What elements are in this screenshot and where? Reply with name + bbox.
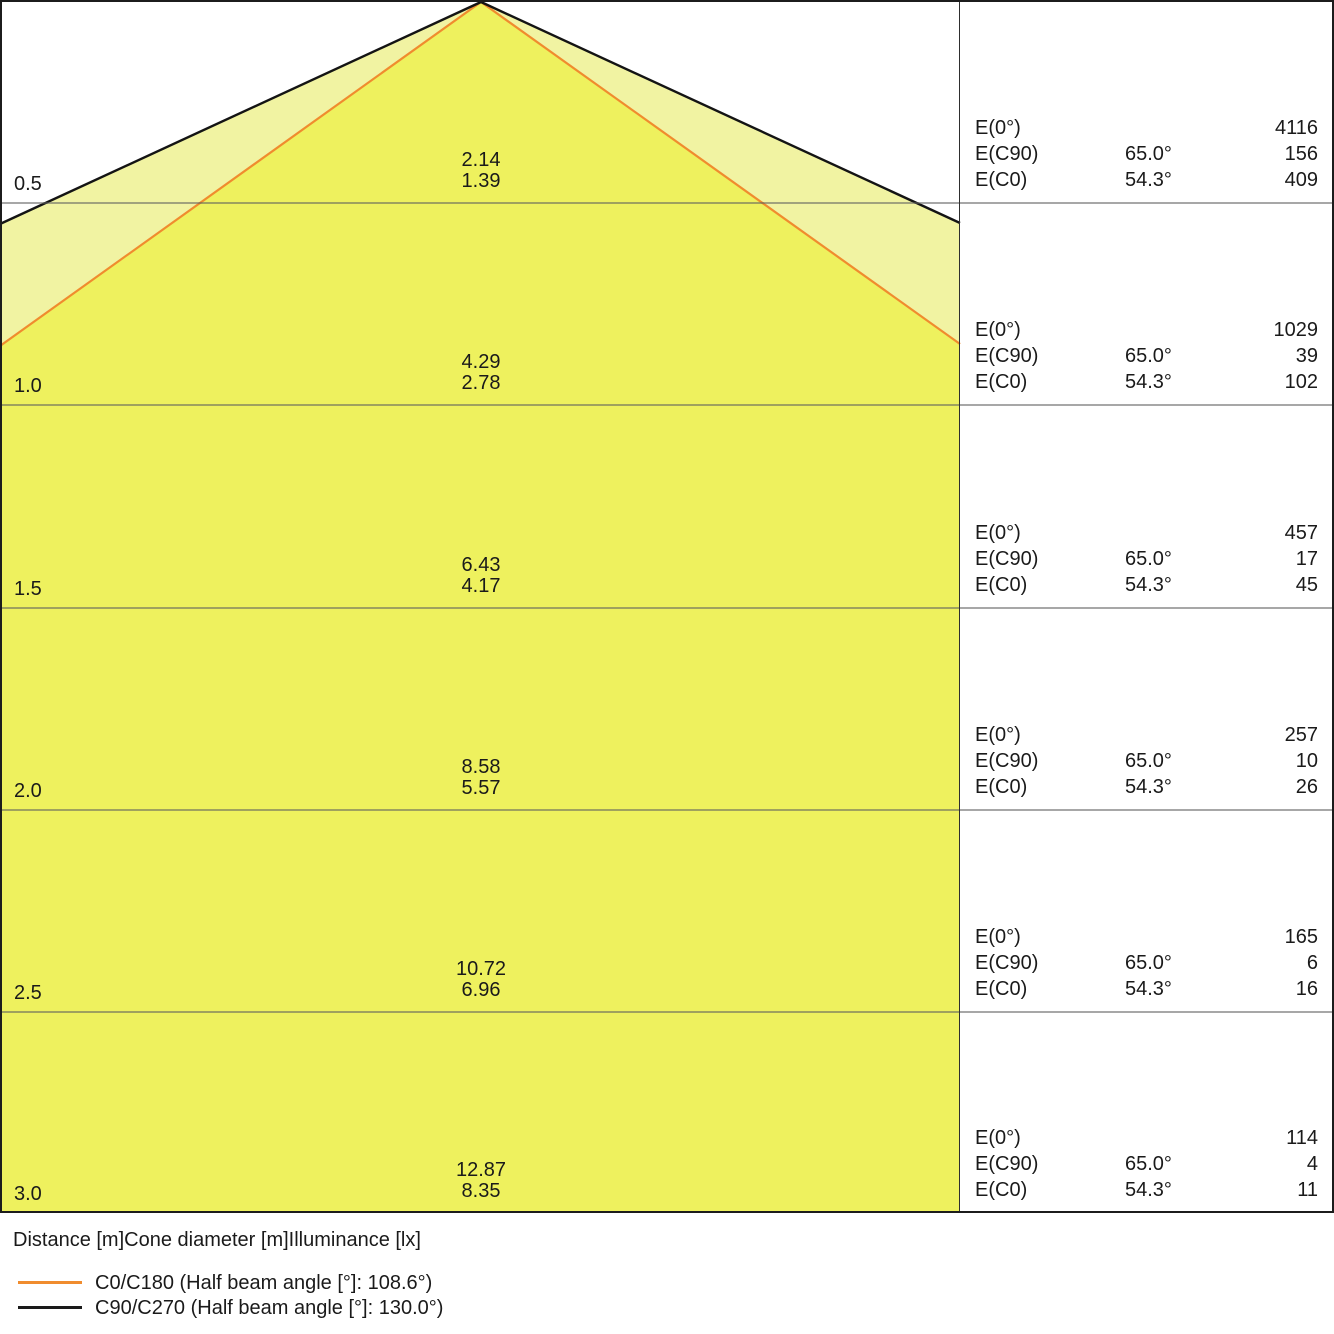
illuminance-table-row: E(0°)114E(C90)65.0°4E(C0)54.3°11 [960,1125,1334,1203]
row-divider-line [0,1011,1334,1013]
e0-label: E(0°) [975,924,1021,950]
ec90-label: E(C90) [975,546,1038,572]
ec0-label: E(C0) [975,774,1027,800]
ec0-label: E(C0) [975,572,1027,598]
table-line-ec0: E(C0)54.3°11 [960,1177,1334,1203]
e0-label: E(0°) [975,1125,1021,1151]
legend-c90-label: C90/C270 (Half beam angle [°]: 130.0°) [95,1297,443,1320]
table-line-ec0: E(C0)54.3°409 [960,167,1334,193]
cone-diameter-c0: 6.96 [0,980,962,1001]
table-line-e0: E(0°)457 [960,520,1334,546]
cone-diameter-c90: 8.58 [0,757,962,778]
table-line-ec90: E(C90)65.0°4 [960,1151,1334,1177]
table-line-ec0: E(C0)54.3°45 [960,572,1334,598]
e0-label: E(0°) [975,722,1021,748]
ec90-angle: 65.0° [1125,1151,1172,1177]
cone-diameter-labels: 2.141.39 [0,150,962,192]
table-line-e0: E(0°)165 [960,924,1334,950]
ec0-angle: 54.3° [1125,976,1172,1002]
table-line-ec0: E(C0)54.3°16 [960,976,1334,1002]
ec0-value: 409 [1285,167,1318,193]
ec0-value: 102 [1285,369,1318,395]
e0-value: 457 [1285,520,1318,546]
e0-label: E(0°) [975,317,1021,343]
cone-diagram: 0.52.141.39E(0°)4116E(C90)65.0°156E(C0)5… [0,0,1334,1213]
footer-columns-label: Distance [m]Cone diameter [m]Illuminance… [13,1228,421,1252]
ec0-label: E(C0) [975,167,1027,193]
table-line-e0: E(0°)257 [960,722,1334,748]
ec90-angle: 65.0° [1125,748,1172,774]
legend-c0-label: C0/C180 (Half beam angle [°]: 108.6°) [95,1272,432,1295]
table-line-ec90: E(C90)65.0°10 [960,748,1334,774]
ec90-label: E(C90) [975,343,1038,369]
cone-diameter-c90: 6.43 [0,555,962,576]
legend-c0-line-swatch [18,1281,82,1284]
e0-value: 165 [1285,924,1318,950]
cone-diameter-c0: 1.39 [0,171,962,192]
ec90-label: E(C90) [975,748,1038,774]
ec90-value: 39 [1296,343,1318,369]
ec90-angle: 65.0° [1125,546,1172,572]
cone-diameter-c0: 2.78 [0,373,962,394]
table-line-e0: E(0°)114 [960,1125,1334,1151]
cone-diameter-c0: 4.17 [0,576,962,597]
ec0-label: E(C0) [975,1177,1027,1203]
table-line-e0: E(0°)1029 [960,317,1334,343]
illuminance-table-row: E(0°)257E(C90)65.0°10E(C0)54.3°26 [960,722,1334,800]
ec0-label: E(C0) [975,976,1027,1002]
ec90-value: 4 [1307,1151,1318,1177]
ec0-angle: 54.3° [1125,774,1172,800]
illuminance-table-row: E(0°)4116E(C90)65.0°156E(C0)54.3°409 [960,115,1334,193]
table-line-ec0: E(C0)54.3°26 [960,774,1334,800]
e0-value: 114 [1286,1125,1318,1151]
table-line-ec90: E(C90)65.0°6 [960,950,1334,976]
ec90-value: 6 [1307,950,1318,976]
cone-diameter-labels: 6.434.17 [0,555,962,597]
ec0-angle: 54.3° [1125,572,1172,598]
e0-label: E(0°) [975,115,1021,141]
ec0-value: 16 [1296,976,1318,1002]
ec0-angle: 54.3° [1125,167,1172,193]
ec0-value: 45 [1296,572,1318,598]
cone-diameter-c90: 10.72 [0,959,962,980]
illuminance-table-row: E(0°)1029E(C90)65.0°39E(C0)54.3°102 [960,317,1334,395]
cone-diameter-c90: 4.29 [0,352,962,373]
ec0-value: 26 [1296,774,1318,800]
cone-diameter-c0: 5.57 [0,778,962,799]
ec90-value: 156 [1285,141,1318,167]
table-line-ec90: E(C90)65.0°156 [960,141,1334,167]
legend-c90-line-swatch [18,1306,82,1309]
cone-diameter-c90: 2.14 [0,150,962,171]
row-divider-line [0,809,1334,811]
illuminance-table-row: E(0°)457E(C90)65.0°17E(C0)54.3°45 [960,520,1334,598]
cone-diameter-labels: 12.878.35 [0,1160,962,1202]
ec90-label: E(C90) [975,950,1038,976]
table-line-ec0: E(C0)54.3°102 [960,369,1334,395]
ec0-angle: 54.3° [1125,369,1172,395]
e0-label: E(0°) [975,520,1021,546]
ec90-value: 10 [1296,748,1318,774]
cone-diameter-c0: 8.35 [0,1181,962,1202]
e0-value: 4116 [1275,115,1318,141]
light-cone-diagram-page: 0.52.141.39E(0°)4116E(C90)65.0°156E(C0)5… [0,0,1334,1334]
cone-diameter-labels: 8.585.57 [0,757,962,799]
illuminance-table-row: E(0°)165E(C90)65.0°6E(C0)54.3°16 [960,924,1334,1002]
table-line-e0: E(0°)4116 [960,115,1334,141]
ec90-angle: 65.0° [1125,141,1172,167]
ec90-value: 17 [1296,546,1318,572]
table-line-ec90: E(C90)65.0°17 [960,546,1334,572]
e0-value: 1029 [1274,317,1319,343]
ec0-angle: 54.3° [1125,1177,1172,1203]
row-divider-line [0,607,1334,609]
ec0-label: E(C0) [975,369,1027,395]
cone-diameter-labels: 10.726.96 [0,959,962,1001]
e0-value: 257 [1285,722,1318,748]
ec0-value: 11 [1297,1177,1318,1203]
cone-diameter-c90: 12.87 [0,1160,962,1181]
ec90-angle: 65.0° [1125,343,1172,369]
ec90-label: E(C90) [975,1151,1038,1177]
table-line-ec90: E(C90)65.0°39 [960,343,1334,369]
row-divider-line [0,202,1334,204]
cone-diameter-labels: 4.292.78 [0,352,962,394]
ec90-label: E(C90) [975,141,1038,167]
row-divider-line [0,404,1334,406]
ec90-angle: 65.0° [1125,950,1172,976]
